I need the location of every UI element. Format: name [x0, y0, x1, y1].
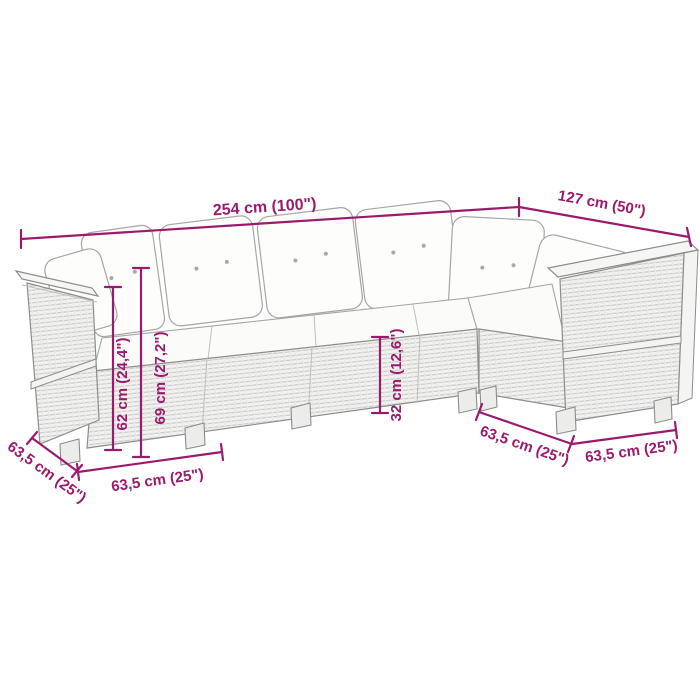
- right-armrest-panel: [560, 253, 684, 422]
- product-dimension-image: 254 cm (100") 127 cm (50") 62 cm (24,4")…: [0, 0, 700, 700]
- dim-height-62-label: 62 cm (24,4"): [114, 337, 131, 430]
- dim-width-left-label: 63,5 cm (25"): [110, 466, 204, 496]
- dimension-diagram: 254 cm (100") 127 cm (50") 62 cm (24,4")…: [0, 0, 700, 700]
- dim-height-69-label: 69 cm (27,2"): [152, 331, 169, 424]
- dim-width-left: 63,5 cm (25"): [77, 444, 223, 495]
- dim-width-right: 63,5 cm (25"): [572, 422, 679, 466]
- back-cushion: [158, 215, 264, 328]
- dim-height-32-label: 32 cm (12,6"): [388, 328, 405, 421]
